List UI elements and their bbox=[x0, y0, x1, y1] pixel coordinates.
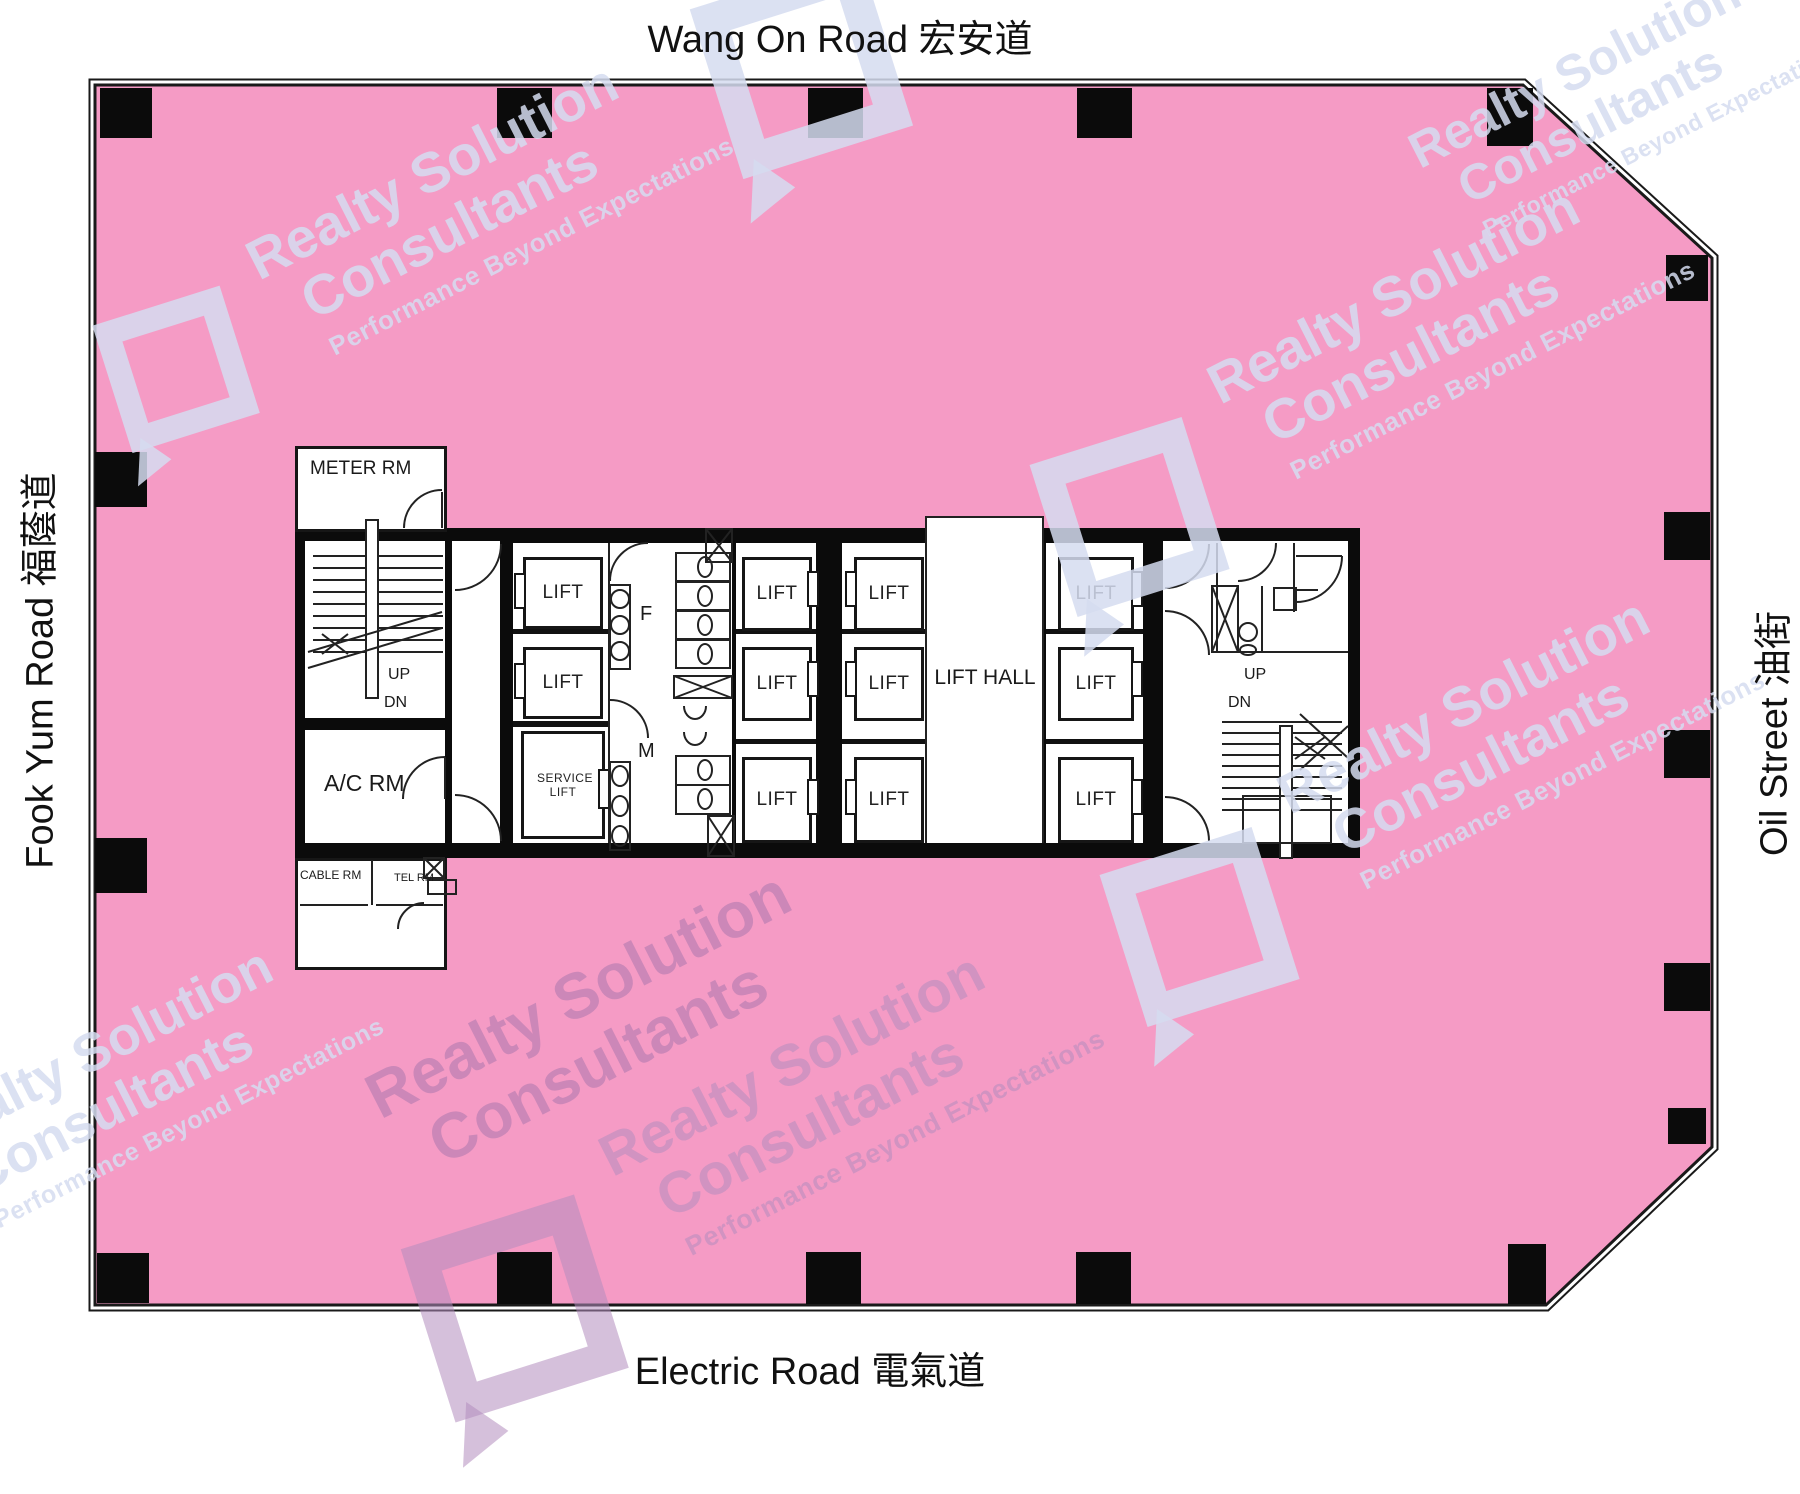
road-label-top: Wang On Road 宏安道 bbox=[540, 8, 1140, 63]
stair2-down-label: DN bbox=[1228, 694, 1251, 712]
washroom-detail bbox=[1212, 543, 1348, 655]
male-toilet-label: M bbox=[638, 740, 655, 763]
road-label-left: Fook Yum Road 福蔭道 bbox=[9, 411, 64, 931]
floorplan-details bbox=[0, 0, 1800, 1494]
tel-room-label: TEL RM bbox=[394, 872, 434, 884]
road-label-right: Oil Street 油街 bbox=[1743, 494, 1798, 974]
meter-room-label: METER RM bbox=[310, 458, 411, 480]
ac-room-label: A/C RM bbox=[324, 770, 405, 797]
stair-left-detail bbox=[308, 520, 443, 698]
toilet-fixtures bbox=[610, 529, 734, 856]
door-arcs bbox=[403, 490, 1342, 841]
lift-hall-label: LIFT HALL bbox=[930, 665, 1040, 691]
female-toilet-label: F bbox=[640, 603, 652, 626]
stair-up-label: UP bbox=[388, 666, 410, 684]
stair-down-label: DN bbox=[384, 694, 407, 712]
cable-room-label: CABLE RM bbox=[300, 868, 361, 882]
stair2-up-label: UP bbox=[1244, 666, 1266, 684]
road-label-bottom: Electric Road 電氣道 bbox=[510, 1340, 1110, 1395]
floor-plan: LIFT LIFT SERVICE LIFT LIFT LIFT LIFT LI… bbox=[0, 0, 1800, 1494]
stair-right-detail bbox=[1222, 714, 1348, 858]
